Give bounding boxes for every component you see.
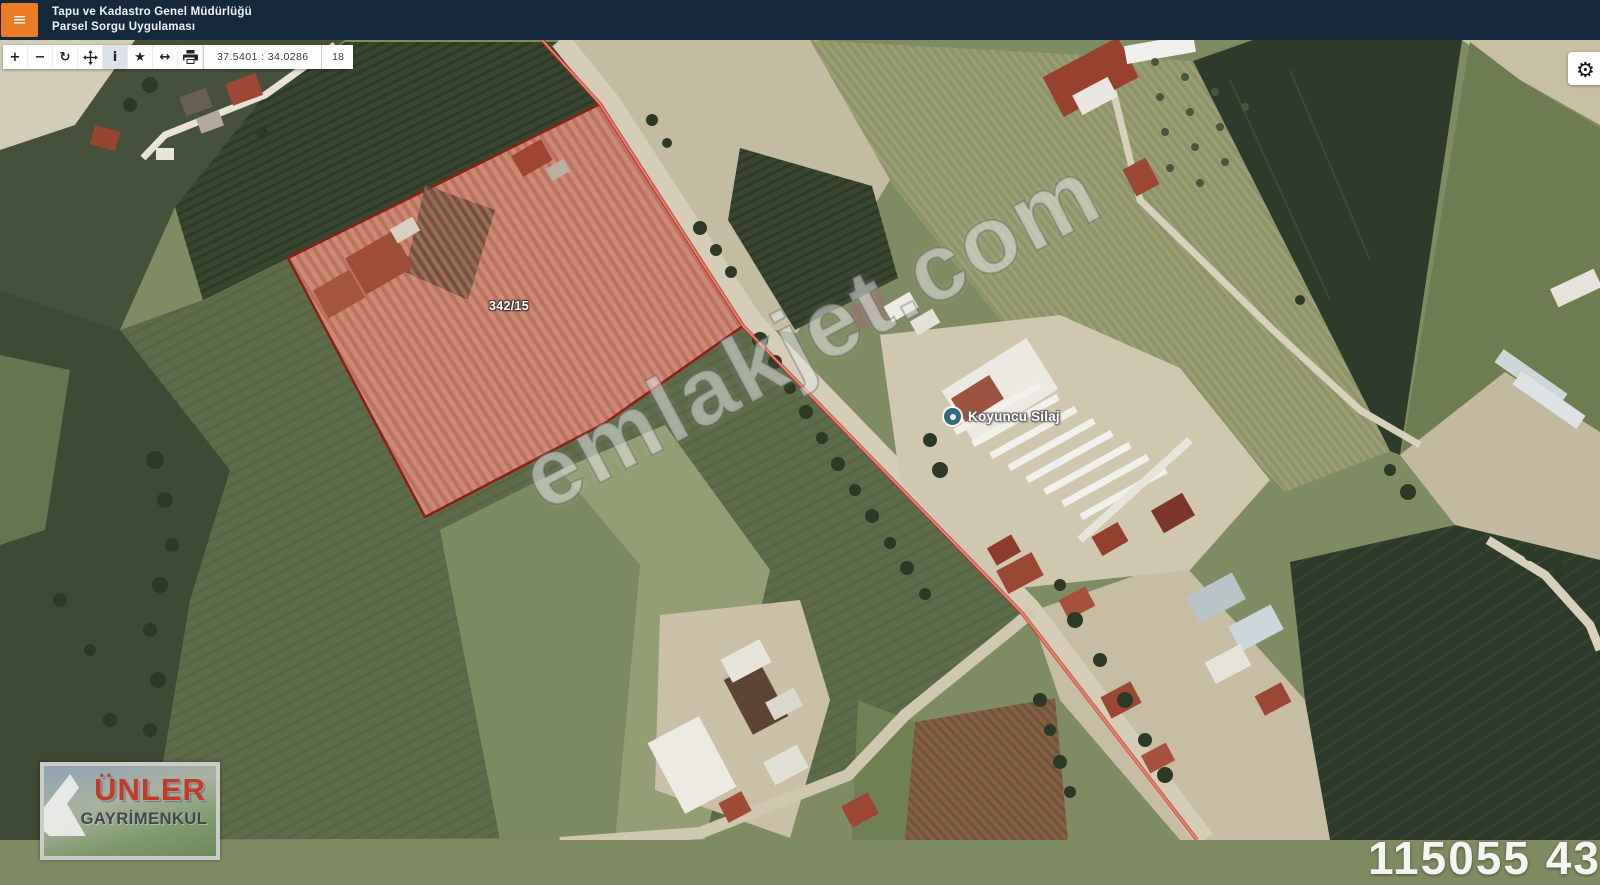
map-toolbar: + − ↻ i ★ ↔ 37.5401 : 34.0286 18 [3,45,353,69]
app-header: ≡ Tapu ve Kadastro Genel Müdürlüğü Parse… [0,0,1600,40]
gear-icon: ⚙ [1576,58,1595,82]
app-title-line1: Tapu ve Kadastro Genel Müdürlüğü [52,5,252,20]
refresh-button[interactable]: ↻ [53,45,78,69]
partial-listing-number: 115055 431 [1368,831,1600,885]
coordinates-readout: 37.5401 : 34.0286 [203,45,321,69]
zoom-out-button[interactable]: − [28,45,53,69]
parcel-number-label: 342/15 [478,299,540,313]
poi-label: Koyuncu Silaj [968,409,1060,424]
map-viewport[interactable]: 342/15 Koyuncu Silaj emlakjet.com 115055… [0,0,1600,840]
app-title-line2: Parsel Sorgu Uygulaması [52,20,252,35]
logo-title: ÜNLER [90,772,210,808]
info-button[interactable]: i [103,45,128,69]
pan-icon [83,50,98,65]
satellite-map[interactable] [0,0,1600,840]
settings-button[interactable]: ⚙ [1568,52,1600,85]
zoom-level-readout: 18 [321,45,353,69]
print-icon [183,50,198,64]
print-button[interactable] [178,45,203,69]
pan-button[interactable] [78,45,103,69]
favorite-button[interactable]: ★ [128,45,153,69]
measure-button[interactable]: ↔ [153,45,178,69]
poi-marker-icon [944,408,961,425]
hamburger-menu-button[interactable]: ≡ [1,3,38,37]
agency-logo-badge: ÜNLER GAYRİMENKUL [40,762,220,860]
logo-subtitle: GAYRİMENKUL [74,810,214,829]
app-title: Tapu ve Kadastro Genel Müdürlüğü Parsel … [52,5,252,35]
poi-koyuncu-silaj[interactable]: Koyuncu Silaj [944,408,1060,425]
zoom-in-button[interactable]: + [3,45,28,69]
